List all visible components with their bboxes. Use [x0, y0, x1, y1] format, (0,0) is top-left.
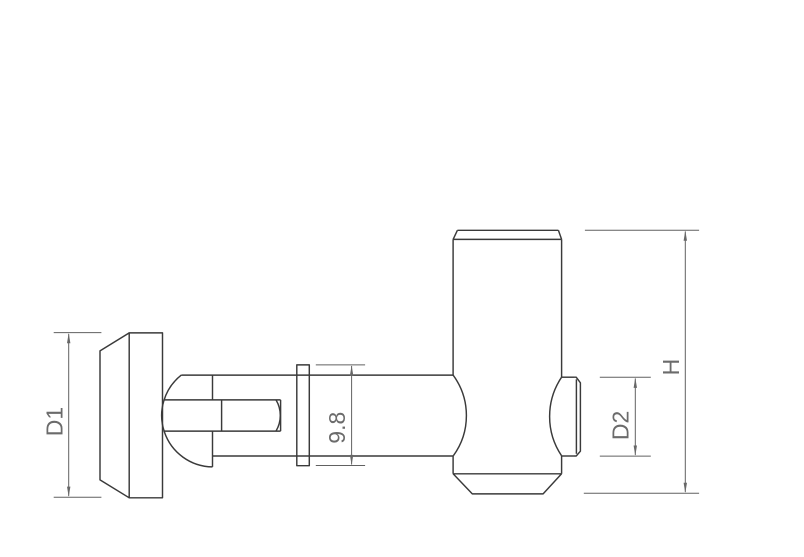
svg-text:9.8: 9.8: [324, 412, 350, 444]
svg-text:D1: D1: [41, 407, 67, 436]
svg-text:H: H: [658, 359, 684, 376]
svg-text:D2: D2: [608, 411, 634, 440]
